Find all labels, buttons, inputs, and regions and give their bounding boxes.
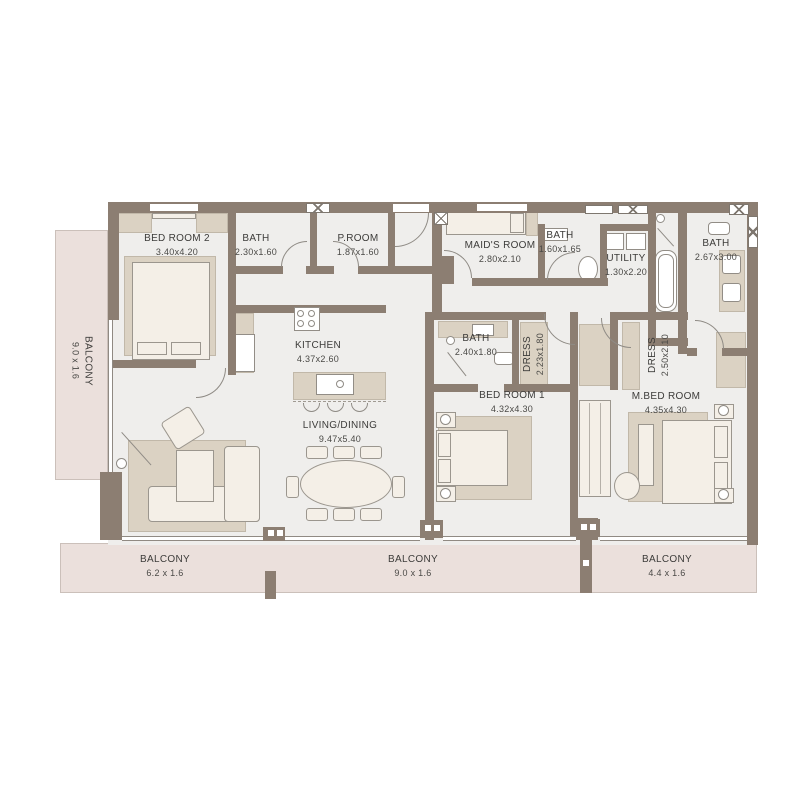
wall-niche bbox=[585, 205, 613, 214]
room-label-bath1: BATH 2.40x1.80 bbox=[444, 333, 508, 357]
wall bbox=[358, 266, 434, 274]
floor-lamp bbox=[116, 458, 127, 469]
room-label-master-bath: BATH 2.67x3.00 bbox=[686, 238, 746, 262]
wall bbox=[678, 202, 687, 354]
window bbox=[150, 204, 198, 211]
wall bbox=[687, 348, 697, 356]
balcony-dims: 4.4 x 1.6 bbox=[627, 568, 707, 578]
closet bbox=[118, 213, 152, 233]
entry-opening bbox=[393, 204, 429, 212]
room-label-living-dining: LIVING/DINING 9.47x5.40 bbox=[294, 420, 386, 444]
lamp bbox=[440, 414, 451, 425]
room-label-master-bedroom: M.BED ROOM 4.35x4.30 bbox=[622, 391, 710, 415]
column-hatch bbox=[729, 204, 749, 215]
room-dims: 9.47x5.40 bbox=[294, 434, 386, 444]
wall bbox=[108, 360, 196, 368]
room-dims: 2.50x2.10 bbox=[660, 334, 670, 376]
room-dims: 2.67x3.00 bbox=[686, 252, 746, 262]
balcony-label-1: BALCONY 6.2 x 1.6 bbox=[125, 554, 205, 578]
pillow bbox=[137, 342, 167, 355]
balcony-dims: 6.2 x 1.6 bbox=[125, 568, 205, 578]
island-overhang-line bbox=[293, 401, 386, 402]
lamp bbox=[718, 405, 729, 416]
dining-chair bbox=[333, 508, 355, 521]
window bbox=[108, 320, 113, 472]
window bbox=[443, 536, 576, 541]
window bbox=[600, 536, 747, 541]
wardrobe-rail bbox=[600, 403, 601, 494]
room-label-maids-bath: BATH 1.60x1.65 bbox=[534, 230, 586, 254]
room-dims: 4.35x4.30 bbox=[622, 405, 710, 415]
balcony-label-3: BALCONY 4.4 x 1.6 bbox=[627, 554, 707, 578]
room-dims: 1.60x1.65 bbox=[534, 244, 586, 254]
room-dims: 2.80x2.10 bbox=[452, 254, 548, 264]
wardrobe-rail bbox=[589, 403, 590, 494]
sink bbox=[722, 283, 741, 302]
threshold-mark bbox=[590, 524, 596, 530]
room-dims: 4.37x2.60 bbox=[286, 354, 350, 364]
room-dims: 4.32x4.30 bbox=[468, 404, 556, 414]
burner bbox=[297, 310, 304, 317]
room-label-dress1: DRESS 2.23x1.80 bbox=[518, 322, 548, 386]
room-name: M.BED ROOM bbox=[622, 391, 710, 402]
room-label-proom: P.ROOM 1.87x1.60 bbox=[326, 233, 390, 257]
wall bbox=[747, 202, 758, 545]
threshold-mark bbox=[581, 524, 587, 530]
sink-drain bbox=[336, 380, 344, 388]
closet bbox=[196, 213, 228, 233]
ceiling-lamp bbox=[656, 214, 665, 223]
wall bbox=[434, 312, 546, 320]
room-label-bath2: BATH 2.30x1.60 bbox=[224, 233, 288, 257]
balcony-divider bbox=[265, 571, 276, 599]
bench bbox=[638, 424, 654, 486]
pillow bbox=[171, 342, 201, 355]
armchair bbox=[614, 472, 640, 500]
bathtub-inner bbox=[658, 254, 674, 308]
room-label-kitchen: KITCHEN 4.37x2.60 bbox=[286, 340, 350, 364]
threshold-mark bbox=[277, 530, 283, 536]
dining-chair bbox=[306, 446, 328, 459]
window bbox=[122, 536, 263, 541]
room-dims: 2.40x1.80 bbox=[444, 347, 508, 357]
pillow bbox=[438, 459, 451, 483]
pillow bbox=[510, 213, 524, 233]
column-hatch bbox=[434, 212, 448, 225]
room-name: BATH bbox=[534, 230, 586, 241]
threshold-mark bbox=[268, 530, 274, 536]
window bbox=[477, 204, 527, 211]
lamp bbox=[718, 489, 729, 500]
washing-machine bbox=[604, 233, 624, 250]
room-name: P.ROOM bbox=[326, 233, 390, 244]
balcony-dims: 9.0 x 1.6 bbox=[71, 342, 81, 379]
room-dims: 1.87x1.60 bbox=[326, 247, 390, 257]
room-dims: 1.30x2.20 bbox=[600, 267, 652, 277]
wall bbox=[228, 202, 236, 375]
dryer bbox=[626, 233, 646, 250]
column-hatch bbox=[748, 216, 758, 248]
threshold-mark bbox=[425, 525, 431, 531]
column-hatch bbox=[618, 205, 648, 214]
wall bbox=[472, 278, 538, 286]
sofa-chaise bbox=[224, 446, 260, 522]
balcony-name: BALCONY bbox=[83, 336, 94, 386]
floor-plan: BED ROOM 2 3.40x4.20 BATH 2.30x1.60 P.RO… bbox=[0, 0, 800, 800]
room-name: DRESS bbox=[522, 336, 533, 372]
wall bbox=[100, 472, 122, 540]
dining-chair bbox=[360, 508, 382, 521]
burner bbox=[308, 320, 315, 327]
column-hatch bbox=[306, 203, 330, 213]
room-label-bedroom2: BED ROOM 2 3.40x4.20 bbox=[115, 233, 239, 257]
threshold-mark bbox=[434, 525, 440, 531]
dining-chair bbox=[306, 508, 328, 521]
balcony-dims: 9.0 x 1.6 bbox=[373, 568, 453, 578]
room-name: KITCHEN bbox=[286, 340, 350, 351]
room-dims: 2.30x1.60 bbox=[224, 247, 288, 257]
room-label-utility: UTILITY 1.30x2.20 bbox=[600, 253, 652, 277]
dining-chair bbox=[333, 446, 355, 459]
balcony-name: BALCONY bbox=[627, 554, 707, 565]
room-name: BATH bbox=[444, 333, 508, 344]
room-dims: 2.23x1.80 bbox=[535, 333, 545, 375]
wall bbox=[722, 348, 747, 356]
dining-chair bbox=[392, 476, 405, 498]
room-name: BATH bbox=[686, 238, 746, 249]
burner bbox=[308, 310, 315, 317]
room-name: BED ROOM 1 bbox=[468, 390, 556, 401]
room-name: BATH bbox=[224, 233, 288, 244]
room-label-bedroom1: BED ROOM 1 4.32x4.30 bbox=[468, 390, 556, 414]
kitchen-sink bbox=[316, 374, 354, 395]
room-name: LIVING/DINING bbox=[294, 420, 386, 431]
threshold-mark bbox=[583, 560, 589, 566]
room-name: BED ROOM 2 bbox=[115, 233, 239, 244]
threshold bbox=[576, 519, 600, 537]
balcony-name: BALCONY bbox=[373, 554, 453, 565]
dining-chair bbox=[360, 446, 382, 459]
wall bbox=[108, 202, 119, 320]
wall bbox=[228, 266, 283, 274]
room-label-master-dress: DRESS 2.50x2.10 bbox=[642, 322, 674, 388]
coffee-table bbox=[176, 450, 214, 502]
pillow bbox=[438, 433, 451, 457]
dining-table bbox=[300, 460, 392, 508]
wardrobe bbox=[579, 400, 611, 497]
dining-chair bbox=[286, 476, 299, 498]
balcony-label-2: BALCONY 9.0 x 1.6 bbox=[373, 554, 453, 578]
pillow bbox=[714, 426, 728, 458]
tv-unit bbox=[152, 213, 196, 219]
room-dims: 3.40x4.20 bbox=[115, 247, 239, 257]
balcony-name: BALCONY bbox=[125, 554, 205, 565]
balcony-label-left: BALCONY 9.0 x 1.6 bbox=[66, 325, 98, 397]
room-name: DRESS bbox=[647, 337, 658, 373]
room-name: UTILITY bbox=[600, 253, 652, 264]
wall bbox=[570, 312, 578, 540]
window bbox=[285, 536, 420, 541]
burner bbox=[297, 320, 304, 327]
toilet bbox=[708, 222, 730, 235]
wall bbox=[425, 312, 434, 540]
lamp bbox=[440, 488, 451, 499]
